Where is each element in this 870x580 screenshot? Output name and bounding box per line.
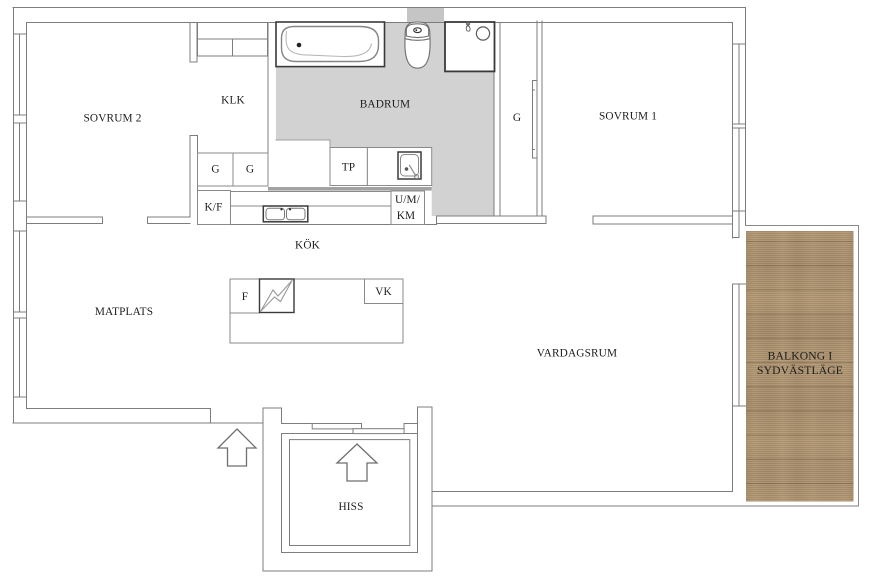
svg-text:MATPLATS: MATPLATS bbox=[95, 306, 153, 318]
svg-text:KÖK: KÖK bbox=[295, 240, 321, 252]
svg-text:F: F bbox=[242, 291, 248, 303]
svg-text:G: G bbox=[246, 164, 254, 176]
svg-text:SOVRUM 1: SOVRUM 1 bbox=[599, 111, 657, 123]
svg-text:SOVRUM 2: SOVRUM 2 bbox=[83, 112, 141, 124]
svg-text:KLK: KLK bbox=[221, 95, 245, 107]
svg-text:K/F: K/F bbox=[204, 202, 222, 214]
svg-text:KM: KM bbox=[397, 210, 416, 222]
svg-text:HISS: HISS bbox=[338, 501, 363, 513]
svg-text:VK: VK bbox=[375, 286, 392, 298]
svg-text:TP: TP bbox=[342, 162, 355, 174]
svg-text:G: G bbox=[513, 112, 521, 124]
svg-text:U/M/: U/M/ bbox=[395, 194, 421, 206]
svg-text:BADRUM: BADRUM bbox=[360, 99, 411, 111]
svg-text:SYDVÄSTLÄGE: SYDVÄSTLÄGE bbox=[757, 363, 843, 377]
svg-text:BALKONG I: BALKONG I bbox=[768, 349, 833, 362]
svg-text:VARDAGSRUM: VARDAGSRUM bbox=[537, 348, 617, 360]
svg-text:G: G bbox=[211, 164, 219, 176]
